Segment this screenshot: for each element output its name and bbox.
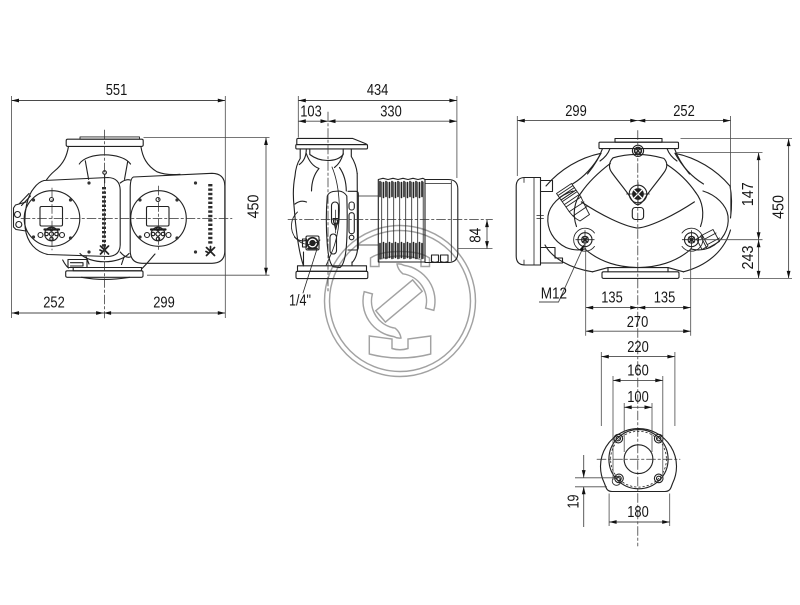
svg-text:135: 135 xyxy=(654,289,676,306)
svg-text:299: 299 xyxy=(153,295,175,312)
svg-text:252: 252 xyxy=(673,103,695,120)
svg-text:450: 450 xyxy=(245,194,262,218)
svg-text:243: 243 xyxy=(740,245,757,269)
svg-text:180: 180 xyxy=(627,504,649,521)
svg-text:220: 220 xyxy=(627,339,649,356)
svg-text:19: 19 xyxy=(565,494,582,508)
svg-text:299: 299 xyxy=(565,103,587,120)
svg-text:147: 147 xyxy=(740,182,757,206)
svg-text:84: 84 xyxy=(467,228,484,243)
svg-text:450: 450 xyxy=(770,195,787,219)
svg-text:1/4": 1/4" xyxy=(289,293,311,310)
svg-text:100: 100 xyxy=(627,389,649,406)
svg-text:330: 330 xyxy=(380,103,402,120)
svg-text:551: 551 xyxy=(106,82,128,99)
svg-text:M12: M12 xyxy=(541,285,567,302)
svg-text:160: 160 xyxy=(627,363,649,380)
svg-text:252: 252 xyxy=(43,295,65,312)
svg-text:135: 135 xyxy=(601,289,623,306)
svg-text:270: 270 xyxy=(627,314,649,331)
svg-text:103: 103 xyxy=(300,103,322,120)
svg-text:434: 434 xyxy=(367,82,389,99)
